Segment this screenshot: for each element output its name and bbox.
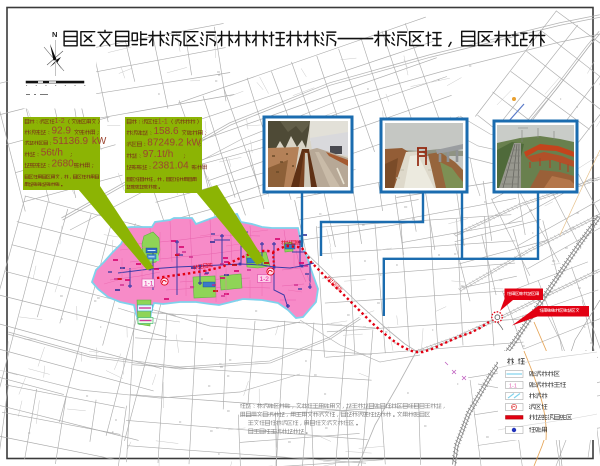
svg-text:1-1: 1-1 [144, 281, 154, 288]
svg-text:158.6: 158.6 [154, 126, 179, 137]
svg-text:1-2: 1-2 [260, 276, 270, 283]
svg-text:kW: kW [92, 136, 107, 147]
svg-text:1-1: 1-1 [509, 383, 517, 389]
svg-text:87249.2: 87249.2 [147, 138, 184, 149]
svg-text:1-2: 1-2 [55, 118, 65, 125]
svg-text:97.1t/h: 97.1t/h [143, 149, 174, 160]
svg-text:2680: 2680 [52, 159, 75, 170]
svg-text:kW: kW [187, 138, 202, 149]
svg-text:1-1: 1-1 [158, 118, 168, 125]
svg-text:N: N [52, 30, 57, 39]
svg-text:56t/h: 56t/h [41, 148, 63, 159]
svg-text:2381.04: 2381.04 [153, 161, 190, 172]
svg-text:51136.9: 51136.9 [53, 136, 89, 147]
